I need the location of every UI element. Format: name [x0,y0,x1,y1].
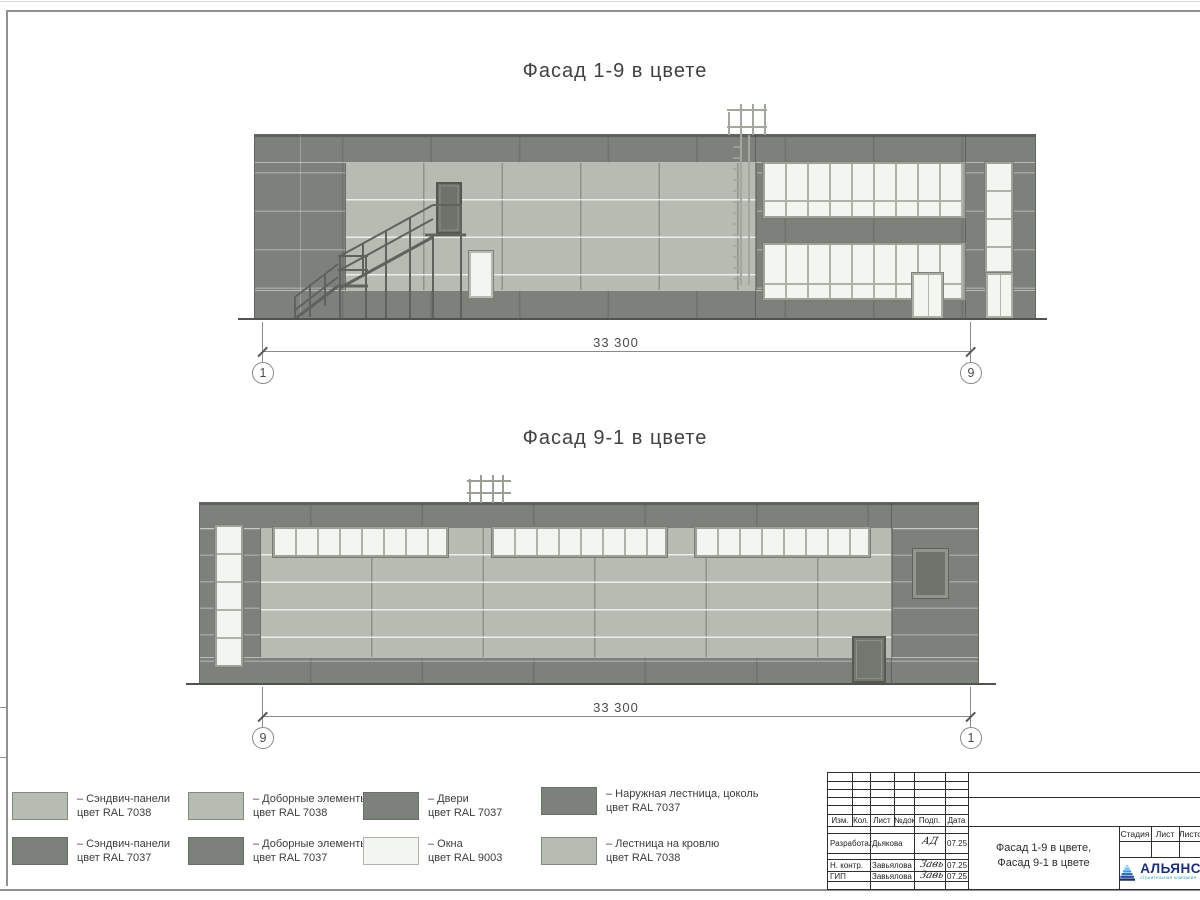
extension-line [970,687,971,727]
roof-ladder [725,102,775,322]
frame-fold-tick [0,757,7,758]
table-line [828,833,968,834]
legend-item: – Лестница на кровлюцвет RAL 7038 [541,837,719,865]
color-swatch-ral7037 [541,787,597,815]
logo-text: АЛЬЯНС [1140,864,1200,873]
color-swatch-ral7037 [12,837,68,865]
stairwell-window-strip [985,162,1013,273]
color-swatch-ral7037 [188,837,244,865]
dimension-line [262,716,970,717]
tb-header-data: Дата [945,816,968,825]
facade-1-9-drawing [255,135,1035,318]
table-line [828,797,1200,798]
tb-role: Разработал [830,839,872,848]
logo-subtext: строительная компания [1140,873,1200,882]
tb-header-kol: Кол. [852,816,870,825]
tb-header-podp: Подп. [914,816,945,825]
facade-9-1-title: Фасад 9-1 в цвете [315,427,915,450]
legend-item: – Наружная лестница, цокольцвет RAL 7037 [541,787,759,815]
color-swatch-ral7038 [541,837,597,865]
axis-bubble-left: 9 [252,727,274,749]
table-line [828,853,968,854]
door-leaf-split-line [928,275,929,316]
tb-header-listov: Листов [1179,829,1200,839]
table-line [1119,841,1200,842]
legend-item: – Доборные элементыцвет RAL 7038 [188,792,368,820]
tb-header-stadiya: Стадия [1119,829,1151,839]
title-block: Изм. Кол. Лист №док Подп. Дата Разработа… [827,772,1200,890]
tb-date: 07.25 [947,861,968,870]
tb-role: Н. контр. [830,861,872,870]
legend-item: – Дверицвет RAL 7037 [363,792,502,820]
tb-name: Завьялова [872,872,914,881]
table-line [828,859,968,860]
tb-role: ГИП [830,872,872,881]
axis-bubble-right: 1 [960,727,982,749]
color-swatch-ral9003 [363,837,419,865]
ground-line [238,318,1047,320]
frame-top-line [6,10,1200,12]
tb-name: Завьялова [872,861,914,870]
tb-header-izm: Изм. [828,816,852,825]
axis-bubble-right: 9 [960,362,982,384]
table-line [828,826,1200,827]
dimension-value: 33 300 [516,700,716,715]
tb-header-list: Лист [870,816,894,825]
table-line [828,805,968,806]
table-line [828,789,968,790]
roof-ladder [465,473,515,507]
table-line [828,781,968,782]
ribbon-window-3 [695,527,870,557]
panel-joint-line [891,503,892,683]
ribbon-window-2 [492,527,667,557]
ribbon-window-1 [273,527,448,557]
window-transom-bar [765,200,963,202]
parapet-line [200,503,978,505]
entrance-door [912,273,943,318]
legend-item: – Сэндвич-панелицвет RAL 7038 [12,792,170,820]
color-swatch-ral7037 [363,792,419,820]
sheet-edge-line [0,1,1200,2]
frame-left-line [6,10,8,886]
frame-fold-tick [0,707,7,708]
color-swatch-ral7038 [12,792,68,820]
dimension-value: 33 300 [516,335,716,350]
extension-line [262,322,263,362]
ground-line [186,683,996,685]
tb-signature: Завь [919,870,947,881]
pyramid-logo-icon [1119,863,1135,883]
axis-bubble-left: 1 [252,362,274,384]
company-logo: АЛЬЯНС строительная компания [1119,857,1200,889]
rear-door [852,636,886,683]
side-door [986,273,1013,318]
tb-header-list2: Лист [1151,829,1179,839]
parapet-line [255,135,1035,137]
panel-joint-line [965,135,966,318]
door-panel [856,640,882,679]
table-line [828,881,968,882]
legend-item: – Доборные элементыцвет RAL 7037 [188,837,368,865]
framed-opening [913,549,948,598]
tb-signature: Завь [919,859,947,870]
stairwell-window-strip [215,525,243,667]
extension-line [970,322,971,362]
tb-header-ndok: №док [894,816,914,825]
door-leaf-split-line [1000,275,1001,316]
external-stair [280,180,500,322]
legend-item: – Окнацвет RAL 9003 [363,837,502,865]
upper-window-band [763,162,965,218]
legend-item: – Сэндвич-панелицвет RAL 7037 [12,837,170,865]
color-swatch-ral7038 [188,792,244,820]
tb-signature: АД [921,836,946,847]
tb-date: 07.25 [947,872,968,881]
facade-1-9-title: Фасад 1-9 в цвете [315,60,915,83]
dimension-line [262,351,970,352]
drawing-sheet: Фасад 1-9 в цвете [0,0,1200,900]
tb-date: 07.25 [947,839,968,848]
document-title: Фасад 1-9 в цвете, Фасад 9-1 в цвете [968,831,1119,881]
extension-line [262,687,263,727]
facade-9-1-drawing [200,503,978,683]
tb-name: Дьякова [872,839,914,848]
table-line [828,814,968,815]
